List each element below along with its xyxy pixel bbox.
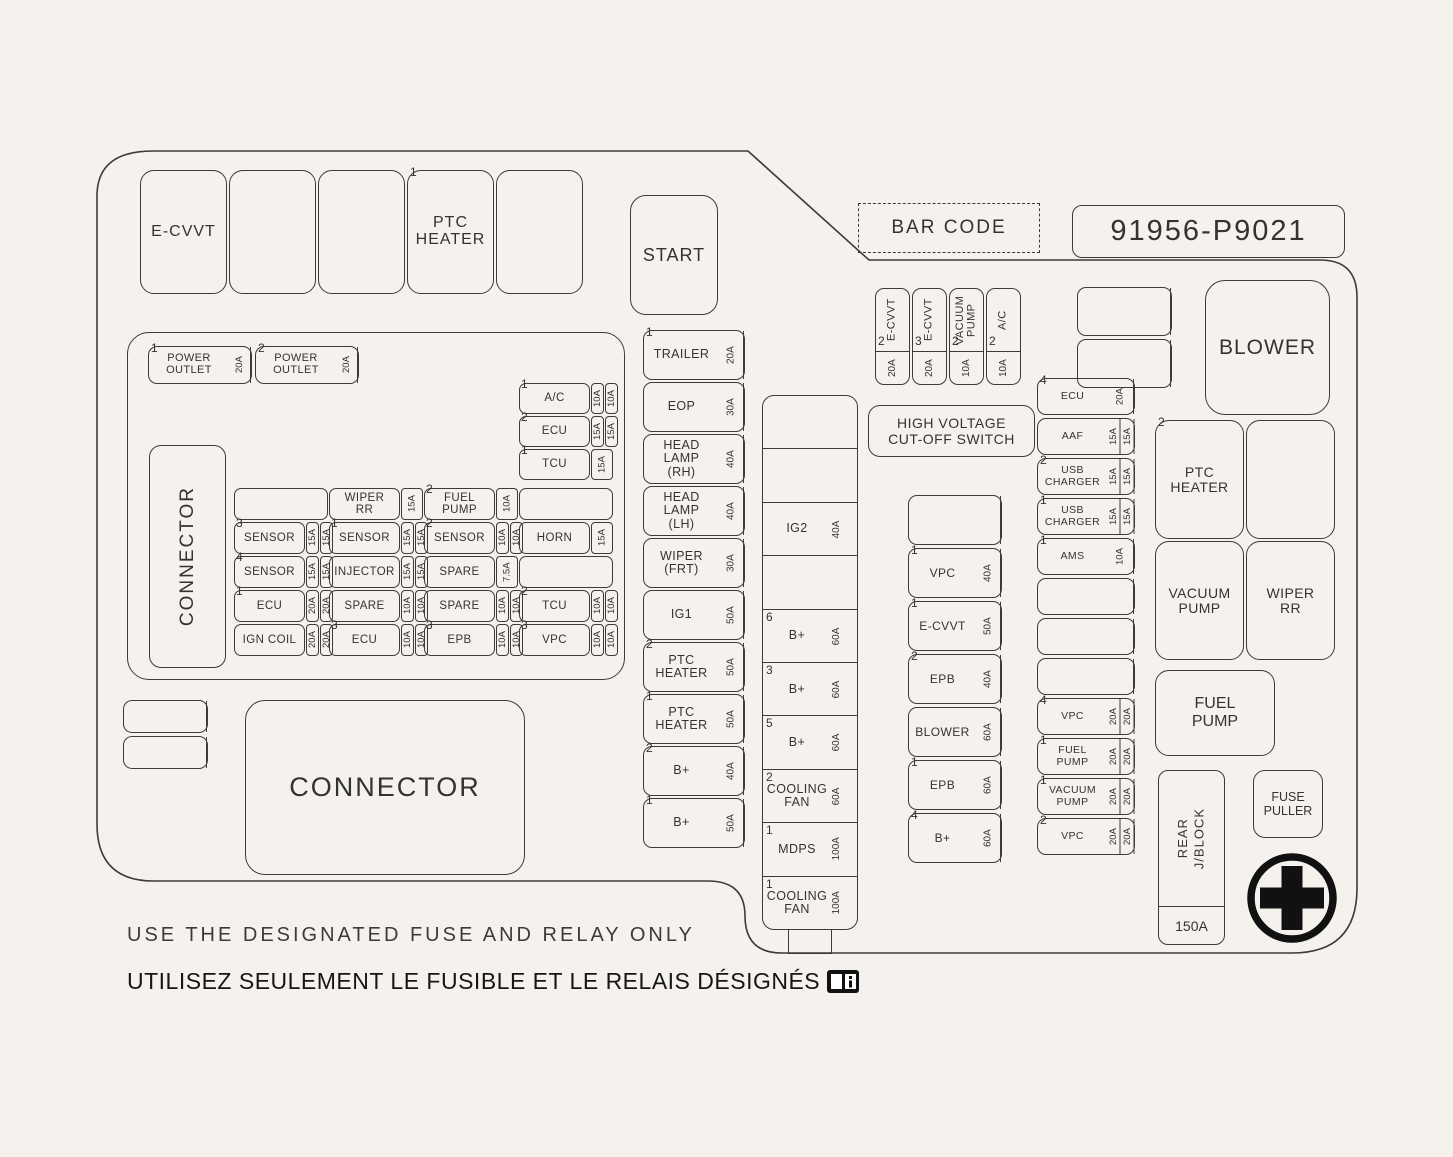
amp-rating-group: 20A20A (306, 624, 328, 656)
amp-rating: 60A (976, 761, 1001, 809)
fuse-label: HEAD LAMP (LH) (644, 487, 719, 535)
amp-rating-group: 7.5A (496, 556, 518, 588)
amp-rating-group: 15A15A (306, 556, 328, 588)
fuse-label: WIPER RR (329, 488, 400, 520)
fuse-label: AMS (1038, 539, 1107, 574)
amp-rating-group: 60A (831, 770, 857, 822)
amp-rating-group: 60A (976, 814, 1001, 862)
fuse-head-lamp-rh-: HEAD LAMP (RH)40A (643, 434, 745, 484)
fuse-index: 1 (1040, 493, 1047, 507)
amp-rating: 15A (591, 416, 604, 447)
amp-rating: 40A (719, 487, 744, 535)
amp-rating: 100A (831, 823, 842, 875)
amp-rating: 60A (831, 716, 842, 768)
amp-rating-group: 50A (719, 695, 744, 743)
amp-rating: 30A (719, 383, 744, 431)
amp-rating: 40A (831, 503, 842, 555)
fuse-label: EOP (644, 383, 719, 431)
amp-rating-group (831, 556, 857, 608)
ac-fuse-column: 1A/C10A10A2ECU15A15A1TCU15A (519, 383, 613, 482)
fuse-injector: INJECTOR15A15A (329, 556, 423, 588)
empty-fuse-slot (908, 495, 1002, 545)
fuse-e-cvvt: 3E-CVVT20A (912, 288, 947, 385)
amp-rating (185, 737, 207, 768)
amp-rating-group: 15A15A (1107, 419, 1134, 454)
fuse-vacuum-pump: 2VACUUM PUMP10A (949, 288, 984, 385)
fuse-index: 1 (1040, 533, 1047, 547)
fuse-label (1038, 659, 1107, 694)
fuse-label: PTC HEATER (1156, 421, 1243, 538)
fuse-index: 4 (911, 808, 918, 822)
amp-rating-group: 50A (976, 602, 1001, 650)
amp-rating: 10A (496, 590, 509, 622)
amp-rating: 60A (831, 610, 842, 662)
ig2-fuse-block: IG240A6B+60A3B+60A5B+60A2COOLING FAN60A1… (762, 395, 858, 930)
fuse-label: VACUUM PUMP (1038, 779, 1107, 814)
fuse-index: 3 (426, 618, 433, 632)
amp-rating: 10A (401, 590, 414, 622)
amp-rating-group (1147, 340, 1171, 387)
fuse-index: 1 (331, 516, 338, 530)
fuse-power-outlet: 2POWER OUTLET20A (255, 346, 359, 384)
fuse-ig1: IG150A (643, 590, 745, 640)
fuse-mdps: 1MDPS100A (763, 822, 857, 875)
fuse-index: 2 (1040, 813, 1047, 827)
fuse-label: HEAD LAMP (RH) (644, 435, 719, 483)
amp-rating-group: 100A (831, 877, 857, 929)
amp-rating: 10A (1107, 539, 1134, 574)
fuse-label: COOLING FAN (763, 770, 831, 822)
amp-rating: 15A (1107, 499, 1121, 534)
fuse-label: INJECTOR (329, 556, 400, 588)
amp-rating-group: 20A (719, 331, 744, 379)
amp-rating-group: 60A (831, 610, 857, 662)
vpc-fuse-column: 1VPC40A1E-CVVT50A2EPB40ABLOWER60A1EPB60A… (908, 495, 1002, 866)
fuse-index: 1 (646, 325, 653, 339)
amp-rating-group: 100A (831, 823, 857, 875)
top-relay-row: E-CVVT1PTC HEATER (140, 170, 583, 294)
fuse-b+: 3B+60A (763, 662, 857, 715)
fuse-label: VPC (1038, 819, 1107, 854)
empty-fuse-slot (318, 170, 405, 294)
amp-rating: 20A (1107, 779, 1121, 814)
cvvt-fuse-group: 2E-CVVT20A3E-CVVT20A2VACUUM PUMP10A2A/C1… (875, 288, 1021, 385)
fuel-pump-relay: FUEL PUMP (1155, 670, 1275, 756)
amp-rating: 15A (605, 416, 618, 447)
empty-fuse-slot (229, 170, 316, 294)
blank-fuse-pair (1077, 287, 1172, 391)
fuse-index: 2 (258, 341, 265, 355)
fuse-epb: 1EPB60A (908, 760, 1002, 810)
fuse-label (909, 496, 976, 544)
amp-rating-group: 20A20A (1107, 739, 1134, 774)
fuse-vpc: 1VPC40A (908, 548, 1002, 598)
amp-rating-group: 40A (719, 747, 744, 795)
fuse-label: USB CHARGER (1038, 499, 1107, 534)
fuse-label: EPB (909, 655, 976, 703)
amp-rating: 20A (1121, 739, 1135, 774)
fuse-label: SENSOR (234, 522, 305, 554)
fuse-label: EPB (424, 624, 495, 656)
amp-rating: 10A (591, 383, 604, 414)
fuse-index: 1 (911, 755, 918, 769)
amp-rating-group: 60A (976, 708, 1001, 756)
amp-rating: 15A (306, 522, 319, 554)
fuse-index: 1 (1040, 733, 1047, 747)
right-relay-quad: 2PTC HEATERVACUUM PUMPWIPER RR (1155, 420, 1337, 660)
fuse-index: 2 (646, 637, 653, 651)
rear-jblock-amp: 150A (1159, 906, 1224, 944)
fuse-wiper-frt-: WIPER (FRT)30A (643, 538, 745, 588)
fuse-wiper-rr: WIPER RR15A (329, 488, 423, 520)
amp-rating (1147, 340, 1171, 387)
fuse-label: PTC HEATER (644, 695, 719, 743)
amp-rating-group: 10A10A (496, 590, 518, 622)
amp-rating: 20A (1107, 819, 1121, 854)
amp-rating: 10A (591, 590, 604, 622)
amp-rating-group: 10A (987, 351, 1020, 384)
fuse-index: 2 (878, 334, 885, 348)
fuse-label (319, 171, 404, 293)
fuse-index: 1 (646, 689, 653, 703)
fuse-label: AAF (1038, 419, 1107, 454)
fuse-label: ECU (519, 416, 590, 447)
amp-rating-group (1107, 579, 1134, 614)
fuse-label: WIPER RR (1247, 542, 1334, 659)
fuse-label (497, 171, 582, 293)
amp-rating: 40A (976, 655, 1001, 703)
amp-rating: 20A (913, 352, 946, 384)
start-relay: START (630, 195, 718, 315)
fuse-ecu: 2ECU15A15A (519, 416, 613, 447)
fuse-b+: 2B+40A (643, 746, 745, 796)
fuse-index: 4 (1040, 693, 1047, 707)
amp-rating: 7.5A (496, 556, 518, 588)
fuse-grid-row: 3SENSOR15A15A1SENSOR15A15A2SENSOR10A10AH… (234, 522, 613, 554)
fuse-vacuum-pump: 1VACUUM PUMP20A20A (1037, 778, 1135, 815)
fuse-label: FUEL PUMP (1038, 739, 1107, 774)
amp-rating: 20A (1107, 379, 1134, 414)
amp-rating-group: 15A15A (401, 522, 423, 554)
fuse-vpc: 2VPC20A20A (1037, 818, 1135, 855)
fuse-cooling-fan: 2COOLING FAN60A (763, 769, 857, 822)
amp-rating-group: 10A10A (496, 522, 518, 554)
footer-note-french: UTILISEZ SEULEMENT LE FUSIBLE ET LE RELA… (127, 968, 860, 995)
amp-rating-group: 10A (950, 351, 983, 384)
fuse-label (1078, 288, 1147, 335)
fuse-sensor: 3SENSOR15A15A (234, 522, 328, 554)
amp-rating: 10A (605, 624, 618, 656)
rear-jblock-fuse: REAR J/BLOCK 150A (1158, 770, 1225, 945)
fuse-label: E-CVVT (909, 602, 976, 650)
empty-fuse-slot (123, 736, 208, 769)
empty-fuse-slot (1246, 420, 1335, 539)
rear-jblock-label-area: REAR J/BLOCK (1159, 771, 1224, 906)
fuse-b+: 1B+50A (643, 798, 745, 848)
fuse-index: 2 (952, 334, 959, 348)
fuse-index: 3 (766, 663, 773, 677)
fuse-index: 1 (911, 543, 918, 557)
amp-rating: 50A (719, 591, 744, 639)
amp-rating-group: 50A (719, 591, 744, 639)
amp-rating (976, 496, 1001, 544)
fuse-label: E-CVVT (141, 171, 226, 293)
fuse-label (763, 556, 831, 608)
fuse-index: 1 (766, 877, 773, 891)
fuse-label (763, 449, 831, 501)
fuse-power-outlet: 1POWER OUTLET20A (148, 346, 252, 384)
amp-rating: 15A (401, 556, 414, 588)
amp-rating-group: 15A15A (1107, 459, 1134, 494)
blower-relay: BLOWER (1205, 280, 1330, 415)
amp-rating: 10A (605, 383, 618, 414)
amp-rating-group: 15A (591, 449, 613, 480)
fuse-grid-row: 4SENSOR15A15AINJECTOR15A15ASPARE7.5A (234, 556, 613, 588)
fuse-label (230, 171, 315, 293)
fuse-vacuum-pump: VACUUM PUMP (1155, 541, 1244, 660)
fuse-spare: SPARE10A10A (424, 590, 518, 622)
fuse-label: B+ (644, 799, 719, 847)
fuse-grid: WIPER RR15A2FUEL PUMP10A3SENSOR15A15A1SE… (234, 488, 613, 658)
empty-fuse-slot (1037, 578, 1135, 615)
left-fuse-panel: 1POWER OUTLET20A2POWER OUTLET20A CONNECT… (127, 332, 625, 680)
amp-rating-group: 60A (831, 716, 857, 768)
fuse-tcu: 2TCU10A10A (519, 590, 613, 622)
fuse-label: IG2 (763, 503, 831, 555)
small-fuse-pair (123, 700, 208, 772)
connector-box: CONNECTOR (245, 700, 525, 875)
fuse-puller-box: FUSE PULLER (1253, 770, 1323, 838)
fuse-index: 3 (915, 334, 922, 348)
fuse-label: VPC (909, 549, 976, 597)
empty-fuse-slot (519, 556, 613, 588)
fuse-index: 3 (236, 516, 243, 530)
fuse-sensor: 4SENSOR15A15A (234, 556, 328, 588)
amp-rating: 15A (591, 449, 613, 480)
fuse-index: 1 (911, 596, 918, 610)
fuse-ptc-heater: 1PTC HEATER (407, 170, 494, 294)
footer-note-english: USE THE DESIGNATED FUSE AND RELAY ONLY (127, 924, 695, 947)
amp-rating: 60A (976, 708, 1001, 756)
amp-rating-group: 50A (719, 643, 744, 691)
fuse-label: B+ (909, 814, 976, 862)
amp-rating-group: 60A (831, 663, 857, 715)
fuse-a-c: 2A/C10A (986, 288, 1021, 385)
fuse-ptc-heater: 1PTC HEATER50A (643, 694, 745, 744)
amp-rating: 30A (719, 539, 744, 587)
amp-rating: 15A (1107, 419, 1121, 454)
amp-rating: 50A (976, 602, 1001, 650)
amp-rating: 40A (976, 549, 1001, 597)
fuse-label: POWER OUTLET (149, 347, 229, 383)
amp-rating: 10A (591, 624, 604, 656)
amp-rating: 50A (719, 695, 744, 743)
fuse-index: 2 (426, 482, 433, 496)
fuse-epb: 2EPB40A (908, 654, 1002, 704)
amp-rating-group: 10A10A (401, 590, 423, 622)
amp-rating-group: 40A (976, 655, 1001, 703)
amp-rating: 40A (719, 747, 744, 795)
amp-rating (1147, 288, 1171, 335)
amp-rating-group: 15A15A (306, 522, 328, 554)
empty-fuse-slot (234, 488, 328, 520)
owners-manual-book-icon (827, 969, 860, 994)
fuse-sensor: 2SENSOR10A10A (424, 522, 518, 554)
mid-fuse-column: 1TRAILER20AEOP30AHEAD LAMP (RH)40AHEAD L… (643, 330, 745, 850)
fuse-label: FUEL PUMP (424, 488, 495, 520)
fuse-index: 1 (766, 823, 773, 837)
amp-rating: 15A (1121, 499, 1135, 534)
fuse-ig2: IG240A (763, 502, 857, 555)
fuse-usb-charger: 2USB CHARGER15A15A (1037, 458, 1135, 495)
rear-jblock-label: REAR J/BLOCK (1175, 808, 1208, 869)
power-outlet-fuses: 1POWER OUTLET20A2POWER OUTLET20A (148, 346, 359, 384)
empty-fuse-slot (123, 700, 208, 733)
fuse-spare: SPARE7.5A (424, 556, 518, 588)
fuse-index: 1 (521, 377, 528, 391)
amp-rating: 10A (401, 624, 414, 656)
amp-rating: 10A (496, 488, 518, 520)
fuse-label: ECU (329, 624, 400, 656)
fuse-index: 1 (410, 165, 417, 179)
fuse-label: TRAILER (644, 331, 719, 379)
amp-rating-group: 15A15A (591, 416, 613, 447)
fuse-index: 3 (331, 618, 338, 632)
part-number: 91956-P9021 (1072, 205, 1345, 258)
ig2-block-tab (788, 929, 832, 954)
amp-rating-group: 40A (719, 435, 744, 483)
amp-rating: 20A (336, 347, 358, 383)
fuse-label: B+ (763, 663, 831, 715)
fuse-b+: 6B+60A (763, 609, 857, 662)
fuse-label: SENSOR (329, 522, 400, 554)
fuse-label: TCU (519, 449, 590, 480)
amp-rating: 15A (401, 522, 414, 554)
fuse-eop: EOP30A (643, 382, 745, 432)
amp-rating-group: 20A (336, 347, 358, 383)
amp-rating-group (1107, 659, 1134, 694)
fuse-label (519, 556, 613, 588)
fuse-label: EPB (909, 761, 976, 809)
fuse-label: USB CHARGER (1038, 459, 1107, 494)
fuse-ecu: 1ECU20A20A (234, 590, 328, 622)
amp-rating-group: 10A10A (401, 624, 423, 656)
amp-rating (1107, 619, 1134, 654)
fuse-index: 6 (766, 610, 773, 624)
amp-rating-group: 60A (976, 761, 1001, 809)
fuse-grid-row: IGN COIL20A20A3ECU10A10A3EPB10A10A3VPC10… (234, 624, 613, 656)
fuse-e-cvvt: 2E-CVVT20A (875, 288, 910, 385)
amp-rating-group: 40A (831, 503, 857, 555)
amp-rating: 20A (1121, 779, 1135, 814)
fuse-index: 2 (521, 584, 528, 598)
amp-rating-group: 20A20A (306, 590, 328, 622)
amp-rating: 20A (1107, 699, 1121, 734)
fuse-label: IG1 (644, 591, 719, 639)
amp-rating-group: 40A (976, 549, 1001, 597)
fuse-spare: SPARE10A10A (329, 590, 423, 622)
fuse-ecu: 4ECU20A (1037, 378, 1135, 415)
amp-rating-group: 20A20A (1107, 779, 1134, 814)
fuse-label: SPARE (329, 590, 400, 622)
amp-rating: 15A (1107, 459, 1121, 494)
fuse-grid-row: 1ECU20A20ASPARE10A10ASPARE10A10A2TCU10A1… (234, 590, 613, 622)
fuse-index: 2 (911, 649, 918, 663)
fuse-fuel-pump: 1FUEL PUMP20A20A (1037, 738, 1135, 775)
fuse-label: MDPS (763, 823, 831, 875)
amp-rating-group: 15A15A (1107, 499, 1134, 534)
amp-rating-group (1147, 288, 1171, 335)
amp-rating: 50A (719, 799, 744, 847)
fuse-label: POWER OUTLET (256, 347, 336, 383)
high-voltage-cutoff-switch: HIGH VOLTAGE CUT-OFF SWITCH (868, 405, 1035, 457)
amp-rating-group (185, 701, 207, 732)
fuse-grid-row: WIPER RR15A2FUEL PUMP10A (234, 488, 613, 520)
amp-rating-group: 15A (401, 488, 423, 520)
empty-fuse-slot (763, 555, 857, 608)
fuse-label: VACUUM PUMP (1156, 542, 1243, 659)
empty-fuse-slot (496, 170, 583, 294)
fuse-puller-cross-icon (1246, 852, 1338, 944)
amp-rating-group: 10A (1107, 539, 1134, 574)
amp-rating: 10A (950, 352, 983, 384)
fuse-label: VPC (519, 624, 590, 656)
fuse-ptc-heater: 2PTC HEATER50A (643, 642, 745, 692)
fuse-index: 1 (236, 584, 243, 598)
fuse-trailer: 1TRAILER20A (643, 330, 745, 380)
fuse-index: 2 (646, 741, 653, 755)
fuse-index: 2 (521, 410, 528, 424)
fuse-index: 1 (1040, 773, 1047, 787)
fuse-index: 2 (426, 516, 433, 530)
fuse-index: 5 (766, 716, 773, 730)
fuse-label: HORN (519, 522, 590, 554)
amp-rating: 20A (1107, 739, 1121, 774)
fuse-index: 2 (1040, 453, 1047, 467)
fuse-label (1038, 579, 1107, 614)
amp-rating-group: 10A (496, 488, 518, 520)
fuse-aaf: AAF15A15A (1037, 418, 1135, 455)
fuse-ams: 1AMS10A (1037, 538, 1135, 575)
fuse-vpc: 3VPC10A10A (519, 624, 613, 656)
empty-fuse-slot (519, 488, 613, 520)
fuse-box-diagram: E-CVVT1PTC HEATER START BAR CODE 91956-P… (0, 0, 1453, 1157)
footer-french-text: UTILISEZ SEULEMENT LE FUSIBLE ET LE RELA… (127, 968, 820, 995)
amp-rating-group: 10A10A (591, 624, 613, 656)
fuse-label: VPC (1038, 699, 1107, 734)
fuse-e-cvvt: E-CVVT (140, 170, 227, 294)
amp-rating (1107, 659, 1134, 694)
amp-rating: 40A (719, 435, 744, 483)
fuse-label (234, 488, 328, 520)
fuse-index: 2 (766, 770, 773, 784)
fuse-fuel-pump: 2FUEL PUMP10A (424, 488, 518, 520)
amp-rating-group: 20A20A (1107, 699, 1134, 734)
amp-rating-group: 20A (876, 351, 909, 384)
amp-rating: 60A (976, 814, 1001, 862)
amp-rating-group: 20A20A (1107, 819, 1134, 854)
empty-fuse-slot (763, 396, 857, 448)
amp-rating-group: 15A15A (401, 556, 423, 588)
fuse-label: ECU (1038, 379, 1107, 414)
fuse-label: B+ (763, 716, 831, 768)
amp-rating-group: 50A (719, 799, 744, 847)
fuse-b+: 4B+60A (908, 813, 1002, 863)
fuse-label (519, 488, 613, 520)
fuse-label: A/C (519, 383, 590, 414)
amp-rating: 10A (496, 522, 509, 554)
fuse-index: 4 (1040, 373, 1047, 387)
